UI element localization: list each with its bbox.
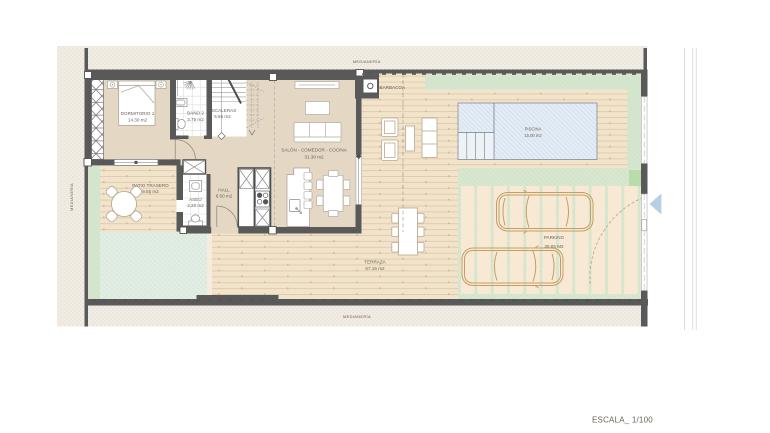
svg-text:2.20 m2: 2.20 m2 <box>187 203 204 208</box>
svg-text:ESCALA_ 1/100: ESCALA_ 1/100 <box>592 416 653 425</box>
svg-text:MEDIANERÍA: MEDIANERÍA <box>343 314 371 319</box>
svg-text:ESCALERAS: ESCALERAS <box>209 108 237 113</box>
svg-text:5.65 m2: 5.65 m2 <box>214 114 231 119</box>
svg-text:DORMITORIO 1: DORMITORIO 1 <box>121 111 155 116</box>
svg-text:TERRAZA: TERRAZA <box>364 260 386 265</box>
svg-text:31.30 m2: 31.30 m2 <box>304 155 324 160</box>
svg-text:HALL: HALL <box>218 188 230 193</box>
svg-text:ASEO: ASEO <box>189 197 202 202</box>
svg-text:SALÓN - COMEDOR - COCINA: SALÓN - COMEDOR - COCINA <box>281 147 348 153</box>
svg-text:15.00 m2: 15.00 m2 <box>524 133 542 138</box>
svg-text:9.55 m2: 9.55 m2 <box>142 189 159 194</box>
svg-text:PATIO TRASERO: PATIO TRASERO <box>132 183 169 188</box>
svg-text:67.15 m2: 67.15 m2 <box>365 266 385 271</box>
svg-text:14.30 m2: 14.30 m2 <box>128 118 148 123</box>
svg-text:35.65 M2: 35.65 M2 <box>544 244 564 249</box>
svg-text:BAÑO 2: BAÑO 2 <box>187 110 204 116</box>
svg-text:MEDIANERÍA: MEDIANERÍA <box>353 59 381 64</box>
svg-text:MEDIANERÍA: MEDIANERÍA <box>69 183 74 211</box>
svg-text:3.75 m2: 3.75 m2 <box>187 117 204 122</box>
svg-text:PISCINA: PISCINA <box>525 127 542 132</box>
svg-text:PARKING: PARKING <box>544 235 565 240</box>
svg-text:6.50 m2: 6.50 m2 <box>216 194 233 199</box>
svg-text:BARBACOA: BARBACOA <box>380 85 406 90</box>
